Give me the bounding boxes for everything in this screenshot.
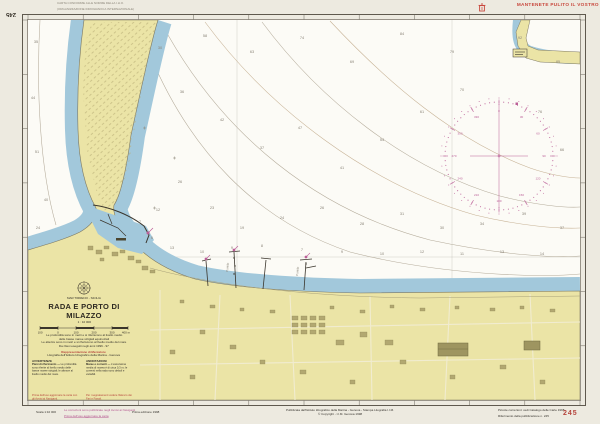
top-note-line: (ORGANIZZAZIONE IDROGRAFICA INTERNAZIONA… (57, 8, 134, 11)
svg-text:60: 60 (536, 132, 540, 136)
publisher-line: Pubblicata dall'Istituto Idrografico del… (286, 409, 394, 411)
height-note: Le altezze sono in metri e si riferiscon… (42, 341, 127, 343)
notes-column-left: AVVERTENZE Piani di riferimento — Le pro… (32, 360, 80, 410)
corrections-line: Le correzioni sono pubblicate negli Avvi… (64, 409, 135, 412)
svg-text:270: 270 (451, 154, 456, 158)
footer-edition-note: Prima edizione 1998 (132, 411, 187, 417)
corrections-line: Prima dell'uso aggiornare la carta (64, 415, 135, 418)
footer-publisher: Pubblicata dall'Istituto Idrografico del… (255, 409, 425, 416)
svg-text:120: 120 (535, 177, 540, 181)
clean-sea-label: MANTENETE PULITO IL VOSTRO MARE (517, 3, 600, 8)
note-warning: Prima dell'uso aggiornare la carta con g… (32, 394, 79, 401)
publisher-line: © Copyright - I.I.M. Genova 1998 (318, 413, 362, 415)
projection-label: Rappresentazione di Mercatore (62, 351, 107, 353)
chart-title: RADA E PORTO DI MILAZZO (32, 302, 136, 320)
top-conformity-note: CARTA CONFORME ALLE NORME DELLA I.H.O. (… (57, 2, 211, 14)
region-label: MAR TIRRENO - SICILIA (67, 297, 101, 299)
right-note-line: Riferimento della pubblicazione n. 245 (498, 415, 564, 418)
depth-note: Le profondità sono in metri e si riferis… (46, 334, 122, 336)
sheet-number: 245 (563, 410, 578, 417)
notes-columns: AVVERTENZE Piani di riferimento — Le pro… (32, 360, 136, 410)
title-block: MAR TIRRENO - SICILIA RADA E PORTO DI MI… (32, 279, 136, 409)
sheet-number-top-left: 245 (6, 2, 16, 20)
notes-column-right: ANNOTAZIONI Maree e correnti — L'escursi… (86, 360, 134, 410)
svg-text:90: 90 (542, 154, 546, 158)
nautical-chart-sheet: Pontile Pontile 030609012015018021024027… (0, 0, 600, 424)
svg-text:210: 210 (474, 193, 479, 197)
top-note-line: CARTA CONFORME ALLE NORME DELLA I.H.O. (57, 2, 134, 5)
footer-right-note: Piccole correzioni: vedi Catalogo delle … (498, 409, 600, 421)
svg-text:300: 300 (458, 132, 463, 136)
clean-sea-banner: MANTENETE PULITO IL VOSTRO MARE (478, 3, 600, 12)
column-header: ANNOTAZIONI (86, 360, 107, 362)
depth-note: delle basse maree sizigiali equinoziali (59, 338, 109, 340)
svg-text:330: 330 (474, 115, 479, 119)
right-note-line: Piccole correzioni: vedi Catalogo delle … (498, 409, 564, 412)
svg-text:150: 150 (519, 193, 524, 197)
inset-label-box (513, 49, 527, 57)
survey-note: Da rilievi eseguiti negli anni 1996 - 97 (59, 345, 109, 347)
note-warning: Per i segnalamenti vedere l'Elenco dei F… (86, 394, 133, 401)
column-header: AVVERTENZE (32, 360, 52, 362)
title-compass-emblem (32, 279, 136, 297)
scale-bar: 100 0 100 200 300 400 m (32, 325, 136, 334)
scalebar-label: 100 (38, 331, 43, 335)
chart-scale: 1 : 10 000 (77, 321, 90, 323)
svg-text:30: 30 (520, 115, 524, 119)
clean-sea-icon (478, 3, 486, 12)
lithography-note: Litografia dell'Istituto Idrografico del… (48, 354, 121, 356)
svg-text:240: 240 (458, 177, 463, 181)
scalebar-label: 400 m (122, 331, 130, 335)
